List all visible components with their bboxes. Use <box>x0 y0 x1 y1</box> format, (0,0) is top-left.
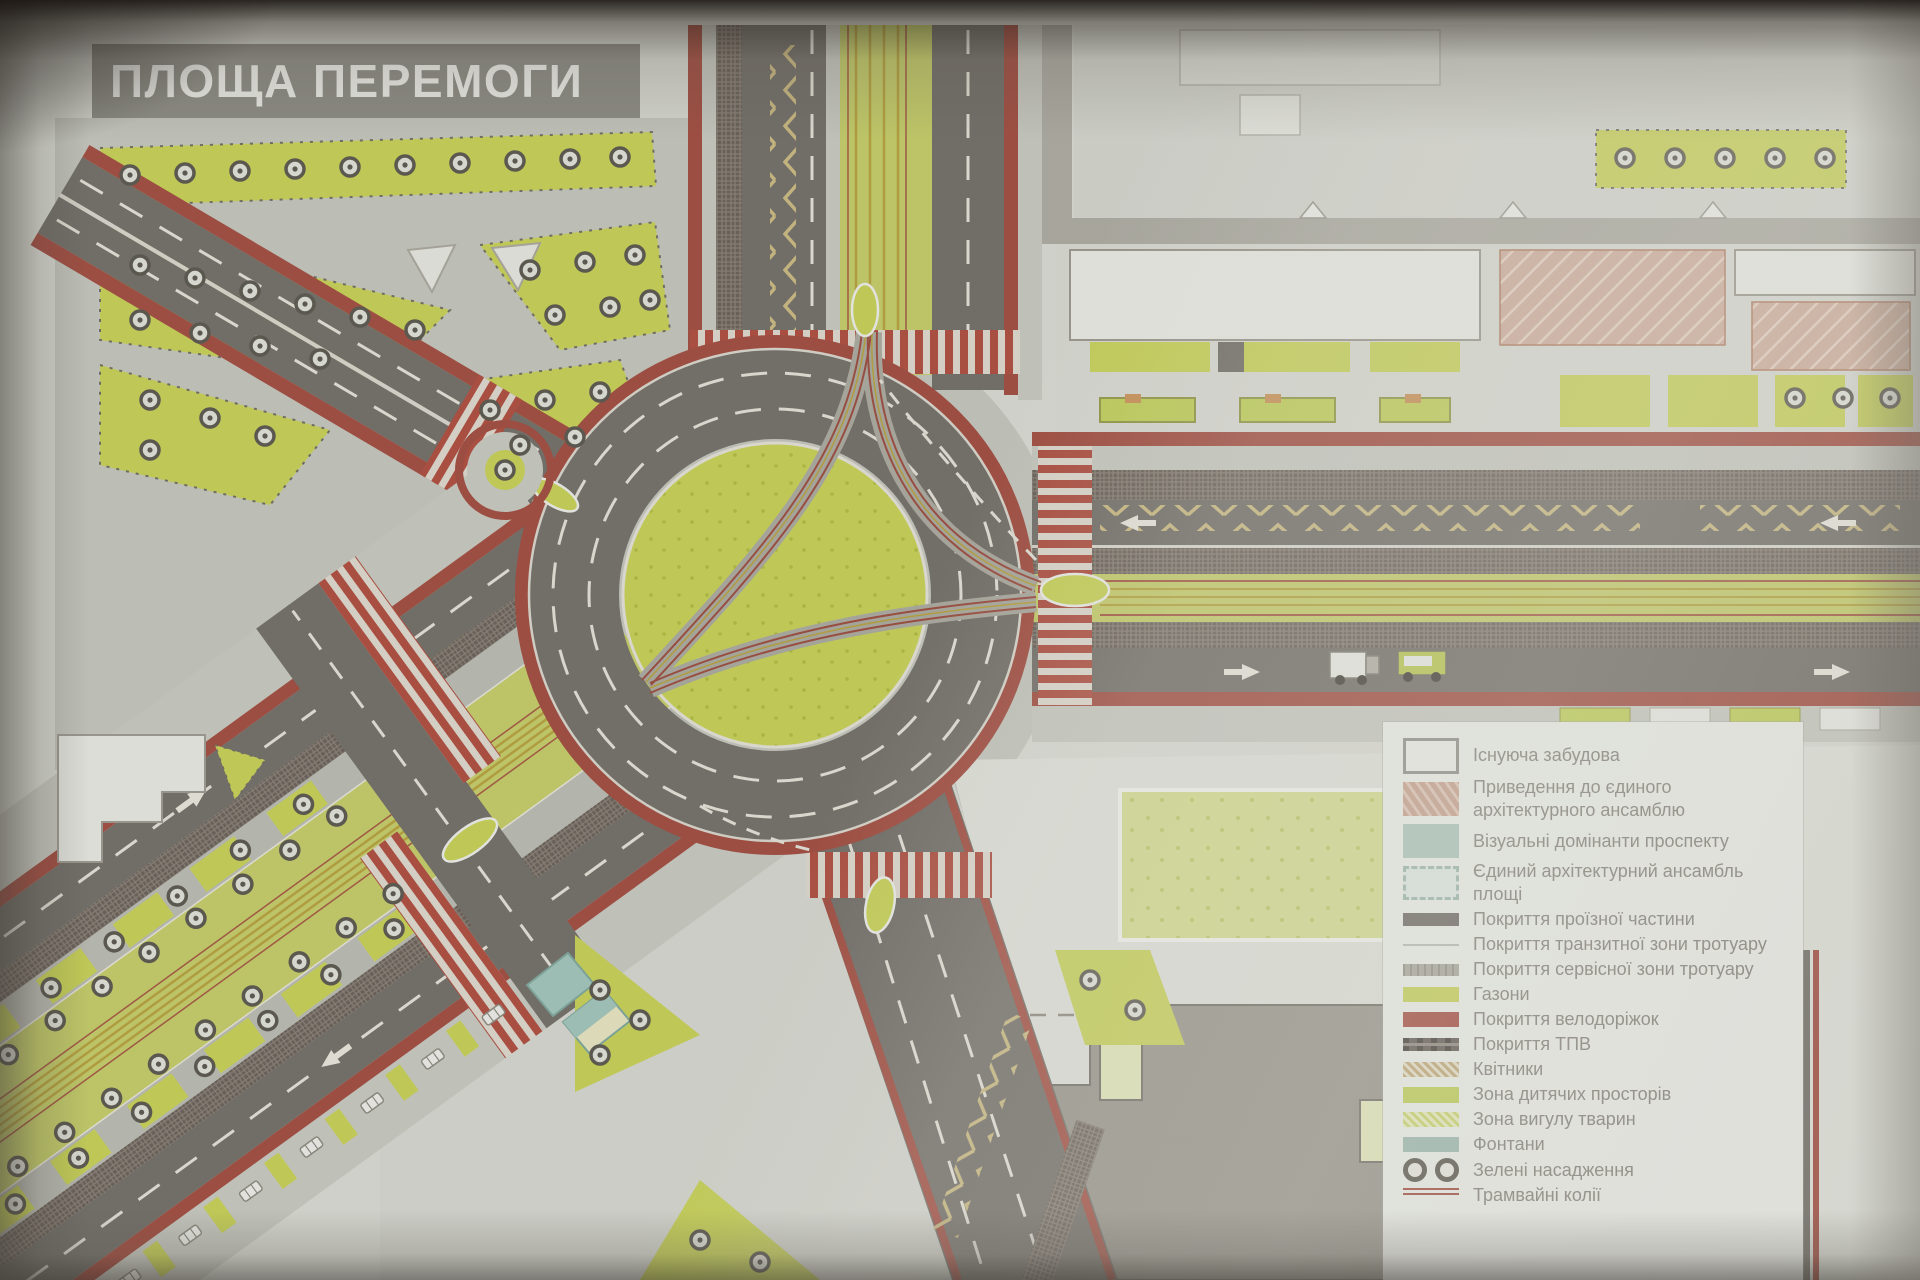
legend-item: Покриття ТПВ <box>1403 1033 1785 1056</box>
east-road <box>1032 432 1920 742</box>
legend-item: Трамвайні колії <box>1403 1184 1785 1207</box>
legend-label: Покриття транзитної зони тротуару <box>1473 933 1767 956</box>
legend-label: Зелені насадження <box>1473 1159 1634 1182</box>
roundabout <box>522 342 1028 848</box>
plan-title-banner: ПЛОЩА ПЕРЕМОГИ <box>92 44 640 118</box>
legend-label: Приведення до єдиного архітектурного анс… <box>1473 776 1785 822</box>
plan-title: ПЛОЩА ПЕРЕМОГИ <box>110 54 583 108</box>
legend-label: Зона вигулу тварин <box>1473 1108 1636 1131</box>
legend-item: Візуальні домінанти проспекту <box>1403 824 1785 858</box>
projected-plan-photo: ПЛОЩА ПЕРЕМОГИ Існуюча забудова Приведен… <box>0 0 1920 1280</box>
legend-label: Покриття проїзної частини <box>1473 908 1695 931</box>
tree-icon <box>1435 1158 1459 1182</box>
legend-swatch-sidewalk-service-zone-surface <box>1403 964 1459 976</box>
legend-swatch-unified-square-ensemble <box>1403 866 1459 900</box>
tree-icon <box>1403 1158 1427 1182</box>
legend-label: Трамвайні колії <box>1473 1184 1601 1207</box>
legend-item: Зона дитячих просторів <box>1403 1083 1785 1106</box>
legend-label: Існуюча забудова <box>1473 744 1620 767</box>
legend-label: Покриття сервісної зони тротуару <box>1473 958 1754 981</box>
legend-swatch-green-plantings <box>1403 1158 1459 1182</box>
legend-panel: Існуюча забудова Приведення до єдиного а… <box>1383 722 1803 1280</box>
legend-swatch-existing-buildings <box>1403 738 1459 774</box>
legend-swatch-lawns <box>1403 987 1459 1002</box>
legend-label: Газони <box>1473 983 1530 1006</box>
legend-item: Зелені насадження <box>1403 1158 1785 1182</box>
legend-item: Покриття транзитної зони тротуару <box>1403 933 1785 956</box>
legend-label: Покриття ТПВ <box>1473 1033 1591 1056</box>
northeast-block <box>1042 25 1920 434</box>
legend-swatch-fountains <box>1403 1137 1459 1152</box>
legend-item: Квітники <box>1403 1058 1785 1081</box>
legend-label: Квітники <box>1473 1058 1543 1081</box>
legend-label: Візуальні домінанти проспекту <box>1473 830 1729 853</box>
roundabout-central-island <box>623 443 927 747</box>
legend-swatch-unified-ensemble-renovation <box>1403 782 1459 816</box>
legend-item: Єдиний архітектурний ансамбль площі <box>1403 860 1785 906</box>
legend-swatch-children-spaces-zone <box>1403 1087 1459 1103</box>
legend-swatch-tpv-surface <box>1403 1038 1459 1051</box>
legend-label: Єдиний архітектурний ансамбль площі <box>1473 860 1785 906</box>
legend-item: Фонтани <box>1403 1133 1785 1156</box>
legend-label: Фонтани <box>1473 1133 1545 1156</box>
legend-item: Покриття сервісної зони тротуару <box>1403 958 1785 981</box>
legend-item: Газони <box>1403 983 1785 1006</box>
crosswalk-south <box>806 852 992 898</box>
legend-swatch-bike-lane-surface <box>1403 1012 1459 1027</box>
legend-item: Приведення до єдиного архітектурного анс… <box>1403 776 1785 822</box>
legend-label: Покриття велодоріжок <box>1473 1008 1659 1031</box>
legend-swatch-sidewalk-transit-zone-surface <box>1403 944 1459 946</box>
legend-item: Покриття проїзної частини <box>1403 908 1785 931</box>
legend-item: Зона вигулу тварин <box>1403 1108 1785 1131</box>
legend-item: Існуюча забудова <box>1403 738 1785 774</box>
legend-swatch-visual-dominants <box>1403 824 1459 858</box>
legend-swatch-flower-beds <box>1403 1062 1459 1077</box>
legend-item: Покриття велодоріжок <box>1403 1008 1785 1031</box>
legend-swatch-pet-walking-zone <box>1403 1112 1459 1127</box>
legend-swatch-tram-tracks <box>1403 1188 1459 1204</box>
legend-label: Зона дитячих просторів <box>1473 1083 1671 1106</box>
legend-swatch-roadway-surface <box>1403 913 1459 926</box>
